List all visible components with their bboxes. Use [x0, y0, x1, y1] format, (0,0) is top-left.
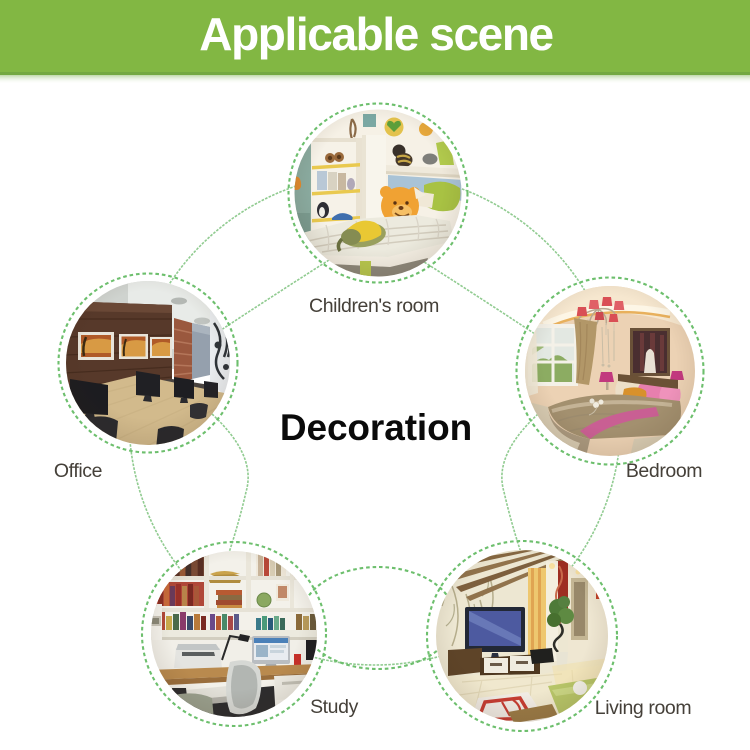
svg-text:Office: Office: [54, 460, 102, 482]
svg-text:Decoration: Decoration: [280, 407, 472, 448]
svg-text:Applicable scene: Applicable scene: [199, 8, 553, 60]
svg-text:Bedroom: Bedroom: [626, 460, 702, 482]
svg-text:Study: Study: [310, 696, 359, 718]
svg-text:Children's room: Children's room: [309, 295, 439, 317]
svg-text:Living room: Living room: [595, 697, 691, 719]
